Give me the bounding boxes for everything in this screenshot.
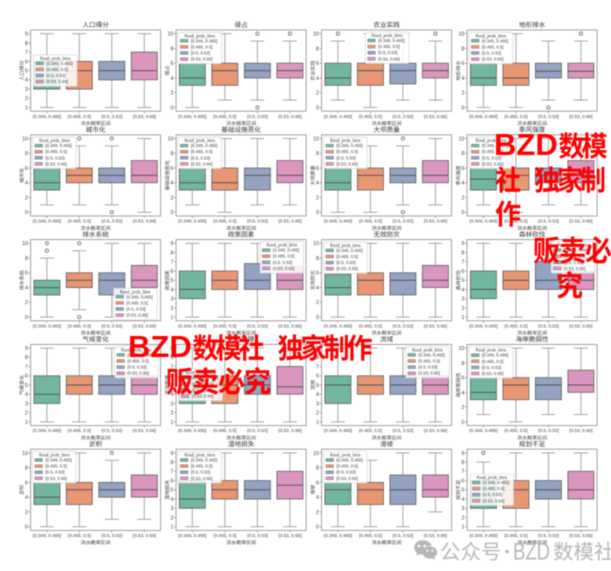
svg-text:(0.465, 0.5]: (0.465, 0.5]	[191, 149, 213, 154]
svg-text:9: 9	[462, 451, 465, 457]
svg-text:2: 2	[171, 195, 174, 201]
svg-text:(0.349, 0.465]: (0.349, 0.465]	[46, 61, 73, 66]
svg-text:2: 2	[25, 195, 28, 201]
svg-text:(0.53, 0.66]: (0.53, 0.66]	[564, 266, 586, 271]
svg-text:(0.465, 0.5]: (0.465, 0.5]	[418, 359, 440, 364]
svg-text:4: 4	[316, 495, 319, 501]
svg-text:6: 6	[171, 166, 174, 172]
svg-text:2: 2	[25, 96, 28, 102]
svg-text:4: 4	[462, 181, 465, 187]
svg-text:6: 6	[25, 59, 28, 65]
svg-text:(0.465, 0.5]: (0.465, 0.5]	[336, 254, 358, 259]
svg-text:(0.53, 0.66]: (0.53, 0.66]	[133, 219, 156, 224]
svg-text:5: 5	[171, 488, 174, 494]
svg-text:10: 10	[22, 136, 28, 142]
svg-text:1: 1	[171, 315, 174, 321]
svg-text:6: 6	[25, 480, 28, 486]
svg-text:3: 3	[316, 401, 319, 407]
svg-text:(0.5, 0.53]: (0.5, 0.53]	[393, 219, 414, 224]
svg-text:5: 5	[25, 69, 28, 75]
svg-text:(0.53, 0.66]: (0.53, 0.66]	[278, 219, 301, 224]
svg-text:(0.465, 0.5]: (0.465, 0.5]	[359, 428, 382, 433]
svg-text:(0.5, 0.53]: (0.5, 0.53]	[378, 50, 397, 55]
svg-text:(0.349, 0.465]: (0.349, 0.465]	[33, 323, 61, 328]
svg-text:(0.5, 0.53]: (0.5, 0.53]	[538, 114, 559, 119]
svg-text:4: 4	[462, 497, 465, 503]
svg-text:(0.465, 0.5]: (0.465, 0.5]	[68, 428, 91, 433]
svg-text:1: 1	[25, 105, 28, 111]
svg-text:8: 8	[171, 151, 174, 157]
svg-text:(0.349, 0.465]: (0.349, 0.465]	[469, 533, 497, 538]
svg-text:(0.465, 0.5]: (0.465, 0.5]	[126, 300, 148, 305]
svg-text:10: 10	[313, 451, 319, 457]
svg-text:(0.53, 0.66]: (0.53, 0.66]	[424, 428, 447, 433]
svg-text:10: 10	[313, 241, 319, 247]
svg-text:8: 8	[462, 250, 465, 256]
svg-text:0: 0	[316, 105, 319, 111]
svg-text:(0.349, 0.465]: (0.349, 0.465]	[324, 114, 352, 119]
svg-text:9: 9	[25, 32, 28, 38]
svg-text:(0.5, 0.53]: (0.5, 0.53]	[247, 114, 268, 119]
svg-text:10: 10	[168, 32, 174, 38]
svg-text:6: 6	[316, 166, 319, 172]
svg-text:4: 4	[25, 181, 28, 187]
svg-text:1: 1	[171, 420, 174, 426]
svg-text:(0.465, 0.5]: (0.465, 0.5]	[273, 254, 295, 259]
svg-text:6: 6	[462, 269, 465, 275]
svg-text:(0.53, 0.66]: (0.53, 0.66]	[133, 323, 156, 328]
svg-text:(0.349, 0.465]: (0.349, 0.465]	[178, 533, 206, 538]
svg-text:(0.465, 0.5]: (0.465, 0.5]	[378, 44, 400, 49]
svg-text:(0.5, 0.53]: (0.5, 0.53]	[45, 470, 64, 475]
svg-text:1: 1	[316, 420, 319, 426]
svg-text:(0.5, 0.53]: (0.5, 0.53]	[247, 428, 268, 433]
svg-text:(0.53, 0.66]: (0.53, 0.66]	[127, 371, 149, 376]
svg-text:(0.349, 0.465]: (0.349, 0.465]	[191, 143, 218, 148]
svg-text:2: 2	[462, 91, 465, 97]
svg-text:2: 2	[462, 515, 465, 521]
svg-text:(0.5, 0.53]: (0.5, 0.53]	[45, 155, 64, 160]
svg-text:(0.349, 0.465]: (0.349, 0.465]	[33, 428, 61, 433]
svg-text:(0.5, 0.53]: (0.5, 0.53]	[393, 533, 414, 538]
svg-text:(0.53, 0.66]: (0.53, 0.66]	[273, 266, 295, 271]
svg-text:(0.5, 0.53]: (0.5, 0.53]	[247, 533, 268, 538]
svg-text:(0.53, 0.66]: (0.53, 0.66]	[46, 79, 68, 84]
svg-text:10: 10	[22, 241, 28, 247]
svg-text:(0.349, 0.465]: (0.349, 0.465]	[33, 533, 61, 538]
svg-text:1: 1	[171, 525, 174, 531]
svg-text:BZD: BZD	[513, 539, 550, 566]
svg-text:(0.465, 0.5]: (0.465, 0.5]	[68, 533, 91, 538]
svg-text:6: 6	[462, 61, 465, 67]
svg-text:3: 3	[462, 506, 465, 512]
svg-text:(0.53, 0.66]: (0.53, 0.66]	[483, 498, 505, 503]
svg-text:6: 6	[25, 374, 28, 380]
svg-text:(0.465, 0.5]: (0.465, 0.5]	[359, 219, 382, 224]
svg-text:(0.5, 0.53]: (0.5, 0.53]	[336, 155, 355, 160]
svg-text:10: 10	[459, 136, 465, 142]
svg-text:7: 7	[316, 364, 319, 370]
svg-text:3: 3	[171, 297, 174, 303]
svg-text:0: 0	[462, 210, 465, 216]
svg-text:(0.349, 0.465]: (0.349, 0.465]	[482, 353, 509, 358]
svg-text:(0.53, 0.66]: (0.53, 0.66]	[378, 56, 400, 61]
svg-text:(0.5, 0.53]: (0.5, 0.53]	[393, 114, 414, 119]
svg-text:8: 8	[316, 151, 319, 157]
svg-text:8: 8	[25, 355, 28, 361]
svg-text:0: 0	[25, 315, 28, 321]
svg-text:(0.53, 0.66]: (0.53, 0.66]	[191, 57, 213, 62]
svg-text:(0.5, 0.53]: (0.5, 0.53]	[46, 73, 65, 78]
svg-text:(0.5, 0.53]: (0.5, 0.53]	[191, 470, 210, 475]
svg-text:(0.349, 0.465]: (0.349, 0.465]	[45, 143, 72, 148]
svg-text:(0.5, 0.53]: (0.5, 0.53]	[538, 533, 559, 538]
svg-text:(0.53, 0.66]: (0.53, 0.66]	[336, 161, 358, 166]
svg-text:(0.465, 0.5]: (0.465, 0.5]	[336, 149, 358, 154]
svg-text:8: 8	[25, 466, 28, 472]
svg-text:(0.5, 0.53]: (0.5, 0.53]	[273, 260, 292, 265]
svg-text:0: 0	[462, 420, 465, 426]
svg-text:(0.465, 0.5]: (0.465, 0.5]	[213, 219, 236, 224]
svg-text:(0.5, 0.53]: (0.5, 0.53]	[191, 51, 210, 56]
svg-text:2: 2	[171, 515, 174, 521]
svg-text:(0.465, 0.5]: (0.465, 0.5]	[46, 67, 68, 72]
svg-text:3: 3	[462, 297, 465, 303]
svg-text:4: 4	[25, 495, 28, 501]
svg-text:(0.465, 0.5]: (0.465, 0.5]	[68, 219, 91, 224]
svg-text:(0.465, 0.5]: (0.465, 0.5]	[504, 323, 527, 328]
svg-text:(0.349, 0.465]: (0.349, 0.465]	[191, 458, 218, 463]
svg-text:(0.349, 0.465]: (0.349, 0.465]	[469, 323, 497, 328]
svg-text:(0.53, 0.66]: (0.53, 0.66]	[424, 323, 447, 328]
svg-text:(0.53, 0.66]: (0.53, 0.66]	[278, 428, 301, 433]
svg-text:9: 9	[462, 241, 465, 247]
svg-text:2: 2	[25, 300, 28, 306]
svg-text:(0.5, 0.53]: (0.5, 0.53]	[101, 533, 122, 538]
svg-text:0: 0	[316, 525, 319, 531]
svg-text:9: 9	[25, 346, 28, 352]
svg-text:(0.53, 0.66]: (0.53, 0.66]	[569, 323, 592, 328]
svg-text:(0.465, 0.5]: (0.465, 0.5]	[68, 323, 91, 328]
svg-text:4: 4	[171, 287, 174, 293]
svg-text:(0.349, 0.465]: (0.349, 0.465]	[324, 219, 352, 224]
svg-text:5: 5	[462, 278, 465, 284]
svg-text:(0.53, 0.66]: (0.53, 0.66]	[133, 428, 156, 433]
svg-text:(0.349, 0.465]: (0.349, 0.465]	[191, 38, 218, 43]
svg-text:4: 4	[316, 392, 319, 398]
svg-text:(0.5, 0.53]: (0.5, 0.53]	[393, 323, 414, 328]
svg-text:(0.53, 0.66]: (0.53, 0.66]	[569, 533, 592, 538]
svg-text:7: 7	[462, 260, 465, 266]
svg-text:(0.349, 0.465]: (0.349, 0.465]	[418, 352, 445, 357]
svg-text:7: 7	[25, 50, 28, 56]
svg-text:0: 0	[462, 105, 465, 111]
svg-text:(0.5, 0.53]: (0.5, 0.53]	[101, 323, 122, 328]
svg-text:1: 1	[462, 315, 465, 321]
svg-text:(0.349, 0.465]: (0.349, 0.465]	[324, 428, 352, 433]
svg-text:2: 2	[462, 195, 465, 201]
svg-text:(0.349, 0.465]: (0.349, 0.465]	[469, 219, 497, 224]
svg-text:7: 7	[25, 364, 28, 370]
svg-text:2: 2	[316, 91, 319, 97]
svg-text:(0.465, 0.5]: (0.465, 0.5]	[45, 149, 67, 154]
svg-text:(0.465, 0.5]: (0.465, 0.5]	[213, 533, 236, 538]
svg-text:(0.53, 0.66]: (0.53, 0.66]	[133, 114, 156, 119]
svg-text:3: 3	[25, 87, 28, 93]
svg-text:8: 8	[316, 46, 319, 52]
svg-text:(0.465, 0.5]: (0.465, 0.5]	[482, 44, 504, 49]
svg-text:0: 0	[171, 210, 174, 216]
svg-text:(0.5, 0.53]: (0.5, 0.53]	[482, 51, 501, 56]
svg-text:2: 2	[316, 411, 319, 417]
svg-text:2: 2	[171, 91, 174, 97]
svg-text:(0.53, 0.66]: (0.53, 0.66]	[482, 161, 504, 166]
svg-text:(0.465, 0.5]: (0.465, 0.5]	[213, 323, 236, 328]
svg-text:(0.349, 0.465]: (0.349, 0.465]	[45, 458, 72, 463]
svg-text:10: 10	[22, 451, 28, 457]
svg-text:(0.53, 0.66]: (0.53, 0.66]	[45, 161, 67, 166]
svg-text:4: 4	[316, 286, 319, 292]
svg-text:6: 6	[171, 479, 174, 485]
svg-text:6: 6	[462, 376, 465, 382]
svg-text:(0.5, 0.53]: (0.5, 0.53]	[247, 323, 268, 328]
svg-text:(0.349, 0.465]: (0.349, 0.465]	[178, 219, 206, 224]
svg-text:(0.465, 0.5]: (0.465, 0.5]	[504, 428, 527, 433]
svg-text:4: 4	[316, 181, 319, 187]
svg-text:6: 6	[171, 269, 174, 275]
svg-text:(0.465, 0.5]: (0.465, 0.5]	[213, 428, 236, 433]
svg-text:(0.465, 0.5]: (0.465, 0.5]	[359, 533, 382, 538]
svg-text:(0.53, 0.66]: (0.53, 0.66]	[336, 266, 358, 271]
svg-text:(0.5, 0.53]: (0.5, 0.53]	[538, 428, 559, 433]
svg-text:(0.53, 0.66]: (0.53, 0.66]	[424, 219, 447, 224]
svg-text:(0.349, 0.465]: (0.349, 0.465]	[336, 143, 363, 148]
svg-text:10: 10	[459, 346, 465, 352]
svg-text:(0.5, 0.53]: (0.5, 0.53]	[538, 219, 559, 224]
svg-text:(0.5, 0.53]: (0.5, 0.53]	[418, 365, 437, 370]
svg-text:9: 9	[171, 451, 174, 457]
svg-text:6: 6	[171, 61, 174, 67]
svg-text:(0.53, 0.66]: (0.53, 0.66]	[424, 114, 447, 119]
svg-text:6: 6	[316, 271, 319, 277]
svg-text:(0.5, 0.53]: (0.5, 0.53]	[538, 323, 559, 328]
svg-text:(0.465, 0.5]: (0.465, 0.5]	[482, 359, 504, 364]
svg-text:(0.465, 0.5]: (0.465, 0.5]	[213, 114, 236, 119]
svg-text:(0.53, 0.66]: (0.53, 0.66]	[569, 219, 592, 224]
svg-text:4: 4	[316, 76, 319, 82]
svg-text:2: 2	[462, 405, 465, 411]
svg-text:(0.5, 0.53]: (0.5, 0.53]	[336, 260, 355, 265]
svg-text:4: 4	[171, 497, 174, 503]
svg-text:(0.53, 0.66]: (0.53, 0.66]	[191, 161, 213, 166]
svg-text:(0.5, 0.53]: (0.5, 0.53]	[101, 428, 122, 433]
svg-text:(0.349, 0.465]: (0.349, 0.465]	[178, 323, 206, 328]
svg-text:(0.53, 0.66]: (0.53, 0.66]	[191, 476, 213, 481]
svg-text:4: 4	[171, 181, 174, 187]
svg-text:1: 1	[25, 420, 28, 426]
svg-text:8: 8	[316, 256, 319, 262]
svg-text:3: 3	[171, 506, 174, 512]
svg-text:(0.53, 0.66]: (0.53, 0.66]	[45, 476, 67, 481]
svg-text:BZD: BZD	[494, 127, 558, 162]
svg-text:7: 7	[171, 260, 174, 266]
svg-text:(0.349, 0.465]: (0.349, 0.465]	[378, 38, 405, 43]
svg-text:(0.53, 0.66]: (0.53, 0.66]	[569, 114, 592, 119]
svg-text:6: 6	[316, 61, 319, 67]
svg-text:0: 0	[316, 315, 319, 321]
svg-text:(0.53, 0.66]: (0.53, 0.66]	[336, 476, 358, 481]
svg-text:(0.349, 0.465]: (0.349, 0.465]	[482, 38, 509, 43]
svg-text:6: 6	[316, 374, 319, 380]
svg-text:8: 8	[462, 460, 465, 466]
svg-text:(0.349, 0.465]: (0.349, 0.465]	[336, 458, 363, 463]
svg-text:(0.349, 0.465]: (0.349, 0.465]	[469, 114, 497, 119]
svg-text:(0.349, 0.465]: (0.349, 0.465]	[324, 323, 352, 328]
svg-text:4: 4	[462, 390, 465, 396]
svg-text:10: 10	[168, 136, 174, 142]
svg-text:8: 8	[171, 250, 174, 256]
svg-text:(0.53, 0.66]: (0.53, 0.66]	[569, 428, 592, 433]
svg-text:4: 4	[462, 76, 465, 82]
svg-text:10: 10	[313, 136, 319, 142]
svg-text:(0.465, 0.5]: (0.465, 0.5]	[504, 114, 527, 119]
svg-text:5: 5	[25, 383, 28, 389]
svg-text:(0.349, 0.465]: (0.349, 0.465]	[336, 248, 363, 253]
svg-text:(0.5, 0.53]: (0.5, 0.53]	[127, 365, 146, 370]
svg-text:(0.5, 0.53]: (0.5, 0.53]	[126, 307, 145, 312]
svg-text:2: 2	[171, 306, 174, 312]
svg-text:8: 8	[462, 151, 465, 157]
svg-text:(0.465, 0.5]: (0.465, 0.5]	[45, 464, 67, 469]
svg-text:10: 10	[459, 32, 465, 38]
svg-text:2: 2	[171, 411, 174, 417]
svg-text:6: 6	[462, 166, 465, 172]
svg-text:(0.53, 0.66]: (0.53, 0.66]	[278, 533, 301, 538]
svg-text:6: 6	[462, 479, 465, 485]
svg-text:8: 8	[171, 46, 174, 52]
svg-text:3: 3	[25, 401, 28, 407]
svg-text:(0.465, 0.5]: (0.465, 0.5]	[359, 114, 382, 119]
svg-text:(0.349, 0.465]: (0.349, 0.465]	[178, 114, 206, 119]
svg-text:5: 5	[316, 383, 319, 389]
svg-text:(0.5, 0.53]: (0.5, 0.53]	[191, 155, 210, 160]
svg-text:10: 10	[313, 32, 319, 38]
svg-text:8: 8	[25, 41, 28, 47]
svg-text:6: 6	[316, 480, 319, 486]
svg-text:0: 0	[25, 525, 28, 531]
svg-text:(0.349, 0.465]: (0.349, 0.465]	[273, 248, 300, 253]
svg-text:(0.53, 0.66]: (0.53, 0.66]	[424, 533, 447, 538]
svg-text:0: 0	[316, 210, 319, 216]
svg-text:(0.53, 0.66]: (0.53, 0.66]	[482, 371, 504, 376]
svg-text:(0.53, 0.66]: (0.53, 0.66]	[133, 533, 156, 538]
svg-text:(0.5, 0.53]: (0.5, 0.53]	[393, 428, 414, 433]
svg-text:8: 8	[171, 460, 174, 466]
svg-text:(0.53, 0.66]: (0.53, 0.66]	[418, 371, 440, 376]
svg-text:(0.5, 0.53]: (0.5, 0.53]	[482, 365, 501, 370]
svg-text:(0.349, 0.465]: (0.349, 0.465]	[33, 114, 61, 119]
svg-text:(0.349, 0.465]: (0.349, 0.465]	[483, 480, 510, 485]
svg-text:1: 1	[462, 525, 465, 531]
svg-text:(0.5, 0.53]: (0.5, 0.53]	[101, 219, 122, 224]
svg-text:(0.53, 0.66]: (0.53, 0.66]	[482, 57, 504, 62]
svg-text:4: 4	[171, 392, 174, 398]
svg-text:6: 6	[25, 271, 28, 277]
svg-text:(0.5, 0.53]: (0.5, 0.53]	[483, 492, 502, 497]
svg-text:(0.465, 0.5]: (0.465, 0.5]	[504, 533, 527, 538]
svg-text:(0.349, 0.465]: (0.349, 0.465]	[469, 428, 497, 433]
svg-text:(0.465, 0.5]: (0.465, 0.5]	[68, 114, 91, 119]
svg-text:(0.5, 0.53]: (0.5, 0.53]	[101, 114, 122, 119]
svg-text:2: 2	[462, 306, 465, 312]
svg-text:9: 9	[171, 241, 174, 247]
svg-text:7: 7	[171, 469, 174, 475]
svg-text:4: 4	[25, 392, 28, 398]
svg-text:(0.53, 0.66]: (0.53, 0.66]	[126, 313, 148, 318]
svg-text:(0.465, 0.5]: (0.465, 0.5]	[191, 44, 213, 49]
svg-text:(0.349, 0.465]: (0.349, 0.465]	[126, 294, 153, 299]
svg-text:4: 4	[462, 287, 465, 293]
svg-text:(0.5, 0.53]: (0.5, 0.53]	[247, 219, 268, 224]
svg-text:(0.349, 0.465]: (0.349, 0.465]	[33, 219, 61, 224]
svg-text:2: 2	[25, 510, 28, 516]
svg-text:8: 8	[462, 46, 465, 52]
svg-text:(0.349, 0.465]: (0.349, 0.465]	[178, 428, 206, 433]
svg-text:(0.5, 0.53]: (0.5, 0.53]	[336, 470, 355, 475]
svg-text:(0.465, 0.5]: (0.465, 0.5]	[483, 486, 505, 491]
svg-text:8: 8	[462, 361, 465, 367]
svg-text:(0.349, 0.465]: (0.349, 0.465]	[324, 533, 352, 538]
svg-text:4: 4	[25, 78, 28, 84]
svg-text:2: 2	[25, 411, 28, 417]
svg-text:2: 2	[316, 195, 319, 201]
svg-text:2: 2	[316, 300, 319, 306]
svg-text:(0.465, 0.5]: (0.465, 0.5]	[191, 464, 213, 469]
svg-text:8: 8	[316, 466, 319, 472]
svg-text:4: 4	[171, 76, 174, 82]
svg-text:8: 8	[25, 151, 28, 157]
svg-text:2: 2	[316, 510, 319, 516]
svg-text:5: 5	[171, 278, 174, 284]
svg-text:7: 7	[462, 469, 465, 475]
svg-text:(0.465, 0.5]: (0.465, 0.5]	[359, 323, 382, 328]
svg-text:(0.465, 0.5]: (0.465, 0.5]	[336, 464, 358, 469]
svg-text:0: 0	[25, 210, 28, 216]
svg-text:4: 4	[25, 286, 28, 292]
svg-text:(0.53, 0.66]: (0.53, 0.66]	[278, 323, 301, 328]
svg-text:8: 8	[25, 256, 28, 262]
svg-text:3: 3	[171, 401, 174, 407]
svg-text:0: 0	[171, 105, 174, 111]
svg-text:5: 5	[462, 488, 465, 494]
svg-text:BZD: BZD	[128, 329, 192, 364]
svg-text:6: 6	[25, 166, 28, 172]
svg-text:(0.53, 0.66]: (0.53, 0.66]	[278, 114, 301, 119]
